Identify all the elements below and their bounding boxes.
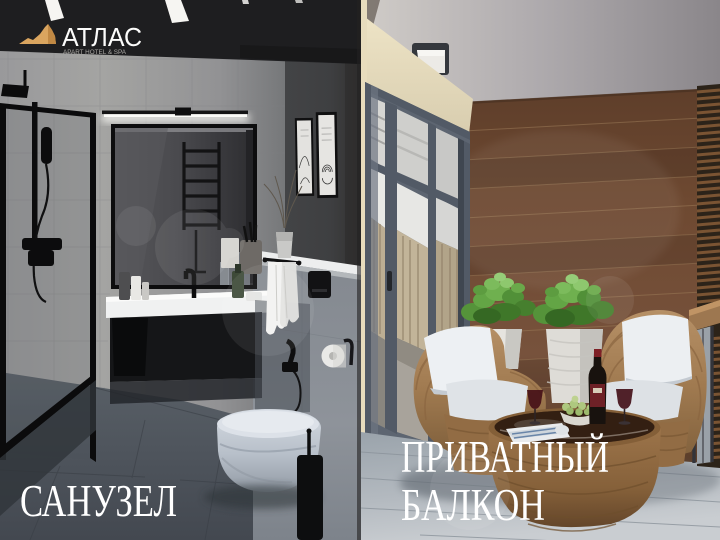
svg-text:APART HOTEL & SPA: APART HOTEL & SPA — [63, 50, 126, 56]
svg-text:АТЛАС: АТЛАС — [62, 22, 142, 52]
svg-text:САНУЗЕЛ: САНУЗЕЛ — [20, 476, 177, 526]
svg-text:ПРИВАТНЫЙ: ПРИВАТНЫЙ — [401, 432, 609, 482]
svg-text:БАЛКОН: БАЛКОН — [401, 480, 545, 530]
